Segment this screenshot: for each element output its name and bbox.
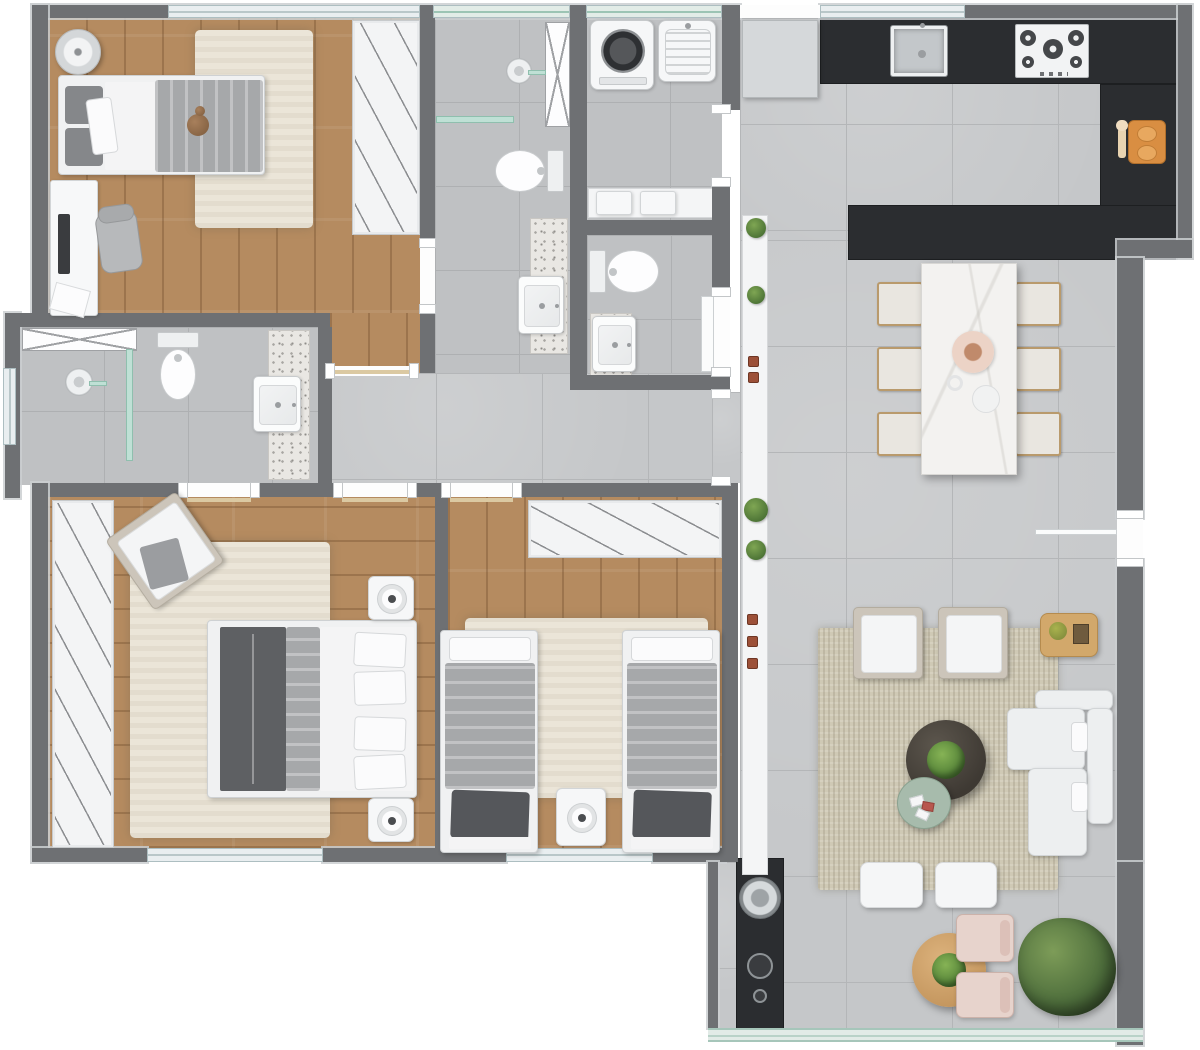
jamb (442, 483, 450, 497)
sink-faucet (555, 304, 559, 308)
jamb (334, 483, 342, 497)
board-bowl (1137, 126, 1157, 142)
console-plant (746, 218, 766, 238)
entry-opening (740, 5, 820, 18)
jamb (712, 105, 730, 113)
master-nightstand-bottom (368, 798, 414, 842)
console-pot (748, 372, 759, 383)
balcony-round-sink (739, 877, 781, 919)
bath-suite1-shower-head (506, 58, 532, 84)
bed-pillow (353, 754, 407, 791)
bed-cushion (450, 790, 530, 841)
wall (32, 483, 48, 862)
bed-pillow (449, 637, 531, 661)
teddy-bear-head (195, 106, 205, 116)
jamb (1117, 559, 1143, 566)
sink-faucet (292, 403, 296, 407)
living-pouf (860, 862, 923, 908)
wall (570, 375, 722, 390)
jamb (1117, 511, 1143, 518)
wall (712, 232, 730, 294)
kitchen-window (820, 5, 965, 18)
stove-burner (1070, 56, 1082, 68)
wall (253, 483, 340, 497)
bed-cushion (632, 790, 712, 841)
bedroom3-door-leaf (450, 498, 513, 502)
balcony-slider-leaf (1035, 529, 1117, 535)
bedroom1-desk-monitor (58, 214, 70, 274)
decor-plant (1049, 622, 1067, 640)
jamb (712, 390, 730, 398)
bath-suite1-door-opening (420, 245, 435, 307)
bed-duvet (155, 80, 263, 172)
bedroom3-bed-left (440, 630, 538, 853)
stove-knobs (1040, 72, 1068, 76)
bath-master-sink (253, 376, 301, 432)
master-door-leaf (342, 498, 408, 502)
bath-suite1-shower-glass (437, 117, 513, 122)
bath-suite1-sink (518, 276, 564, 334)
stove-burner (1022, 56, 1034, 68)
dining-chair (877, 347, 923, 391)
bedroom3-bed-right (622, 630, 720, 853)
toilet-flush (609, 268, 617, 276)
dining-chair (1015, 282, 1061, 326)
bath-social-door-opening (712, 294, 730, 370)
bath-social-door-leaf (701, 296, 714, 372)
console-pot (748, 356, 759, 367)
jamb (420, 239, 435, 247)
wall (318, 327, 332, 497)
bath-suite1-shower-niche (545, 22, 570, 127)
nightstand-lamp-center (578, 814, 586, 822)
bed-sheet (631, 837, 713, 849)
wall (712, 180, 730, 232)
wall (420, 307, 435, 373)
bedroom1-bed (58, 75, 265, 175)
toilet-tank (157, 332, 199, 348)
master-bath-door-opening (185, 483, 253, 497)
kitchen-sink (891, 26, 947, 76)
bed-sheet (449, 837, 531, 849)
sink-drain (612, 342, 618, 348)
living-round-side-table (897, 777, 951, 829)
armchair-cushion (861, 615, 917, 673)
bath-master-toilet (155, 330, 201, 402)
bed-pillow (353, 632, 407, 669)
bedroom3-door-opening (448, 483, 515, 497)
balcony-grill-burner (753, 989, 767, 1003)
bedroom1-pendant-lamp (55, 29, 101, 75)
entry-door (742, 20, 818, 98)
dining-chair (877, 282, 923, 326)
laundry-shelf-box (640, 191, 676, 215)
wall (587, 220, 722, 235)
bedroom1-door-leaf (334, 370, 412, 374)
teddy-bear (187, 114, 209, 136)
jamb (712, 477, 730, 485)
living-sofa (1007, 690, 1113, 858)
sink-drain (918, 50, 926, 58)
bed-duvet (627, 663, 717, 789)
console-pot (747, 636, 758, 647)
bed-pillow (353, 716, 406, 752)
living-armchair (938, 607, 1008, 679)
kitchen-spoon (1118, 128, 1126, 158)
wall (1117, 862, 1143, 1045)
wall (32, 483, 185, 497)
toilet-tank (589, 250, 606, 293)
tank-faucet (685, 23, 691, 29)
coffee-table-plant (927, 741, 965, 779)
bath-suite1-toilet (495, 148, 565, 194)
stove-burner (1020, 30, 1036, 46)
bath-social-toilet (588, 248, 660, 295)
bed-pillow (631, 637, 713, 661)
apartment-floor-plan (0, 0, 1200, 1050)
master-window (147, 848, 323, 862)
balcony-plant (1018, 918, 1116, 1016)
washer-drum (601, 29, 645, 73)
dining-chair (1015, 412, 1061, 456)
wall (32, 5, 48, 317)
nightstand-lamp-center (388, 595, 396, 603)
jamb (513, 483, 521, 497)
toilet-flush (537, 167, 545, 175)
dining-chair (877, 412, 923, 456)
sofa-back (1035, 690, 1113, 710)
master-wardrobe (52, 500, 114, 848)
sink-drain (539, 303, 545, 309)
wall (515, 483, 722, 497)
laundry-shelf-box (596, 191, 632, 215)
wall (570, 5, 587, 390)
jamb (420, 305, 435, 313)
bath-master-shower-glass (127, 350, 132, 460)
kitchen-cutting-board (1128, 120, 1166, 164)
jamb (410, 364, 418, 378)
wall (1117, 258, 1143, 518)
bed-runner (220, 627, 286, 791)
wall (420, 5, 435, 245)
console-plant (744, 498, 768, 522)
wall (1178, 5, 1192, 258)
living-armchair (853, 607, 923, 679)
living-pouf (935, 862, 997, 908)
bed-quilt (286, 627, 320, 791)
dining-chair (1015, 347, 1061, 391)
master-bath-door-leaf (187, 498, 251, 502)
console-plant (747, 286, 765, 304)
dining-plate (972, 385, 1000, 413)
bedroom1-wardrobe (352, 20, 420, 235)
jamb (251, 483, 259, 497)
armchair-cushion (946, 615, 1002, 673)
bedroom3-wardrobe (528, 500, 722, 558)
nightstand-lamp-center (388, 817, 396, 825)
washing-machine (590, 20, 654, 90)
bath-social-sink (592, 316, 636, 372)
tank-basin (665, 29, 711, 75)
bedroom1-desk-chair (94, 209, 144, 274)
stove-burner (1068, 30, 1084, 46)
laundry-window (586, 5, 722, 18)
wall (722, 483, 738, 862)
console-pot (747, 614, 758, 625)
jamb (326, 364, 334, 378)
bed-duvet (445, 663, 535, 789)
kitchen-counter-top (820, 18, 1178, 84)
wall (708, 862, 718, 1028)
sofa-cushion (1071, 722, 1088, 752)
console-plant (746, 540, 766, 560)
shower-arm (529, 71, 545, 74)
washer-panel (599, 77, 647, 85)
console-pot (747, 658, 758, 669)
master-bed (207, 620, 417, 798)
toilet-flush (174, 354, 182, 362)
bath-master-window (3, 368, 16, 445)
laundry-tank (658, 20, 716, 82)
balcony-slider-opening (1117, 518, 1143, 560)
wall (32, 848, 147, 862)
jamb (712, 178, 730, 186)
master-door-opening (340, 483, 410, 497)
shower-arm (90, 382, 106, 385)
bath-master-niche (22, 328, 137, 351)
stove-burner (1043, 39, 1063, 59)
bath-master-shower-head (65, 368, 93, 396)
jamb (712, 288, 730, 296)
jamb (408, 483, 416, 497)
sofa-cushion (1071, 782, 1088, 812)
balcony-grill-burner (747, 953, 773, 979)
wall (722, 5, 740, 110)
hallway-living-connector-floor (712, 392, 740, 483)
sink-drain (275, 402, 281, 408)
jamb (712, 368, 730, 376)
wall (1117, 560, 1143, 862)
master-nightstand-top (368, 576, 414, 620)
balcony-chair (956, 914, 1014, 962)
board-bowl (1137, 145, 1157, 161)
dining-bowl (947, 375, 963, 391)
bed-pillow (353, 670, 406, 706)
bath-suite1-window (433, 5, 570, 18)
sink-faucet (920, 23, 925, 28)
dining-centerpiece (952, 331, 994, 373)
sofa-back (1087, 708, 1113, 824)
balcony-chair (956, 972, 1014, 1018)
sink-faucet (627, 343, 631, 347)
jamb (179, 483, 187, 497)
kitchen-stove (1015, 24, 1089, 78)
bedroom3-nightstand (556, 788, 606, 846)
decor-frame (1073, 624, 1089, 644)
wall (1117, 240, 1192, 258)
toilet-tank (547, 150, 564, 192)
living-side-table (1040, 613, 1098, 657)
balcony-glass-railing (708, 1028, 1143, 1042)
bedroom1-window (168, 5, 420, 18)
